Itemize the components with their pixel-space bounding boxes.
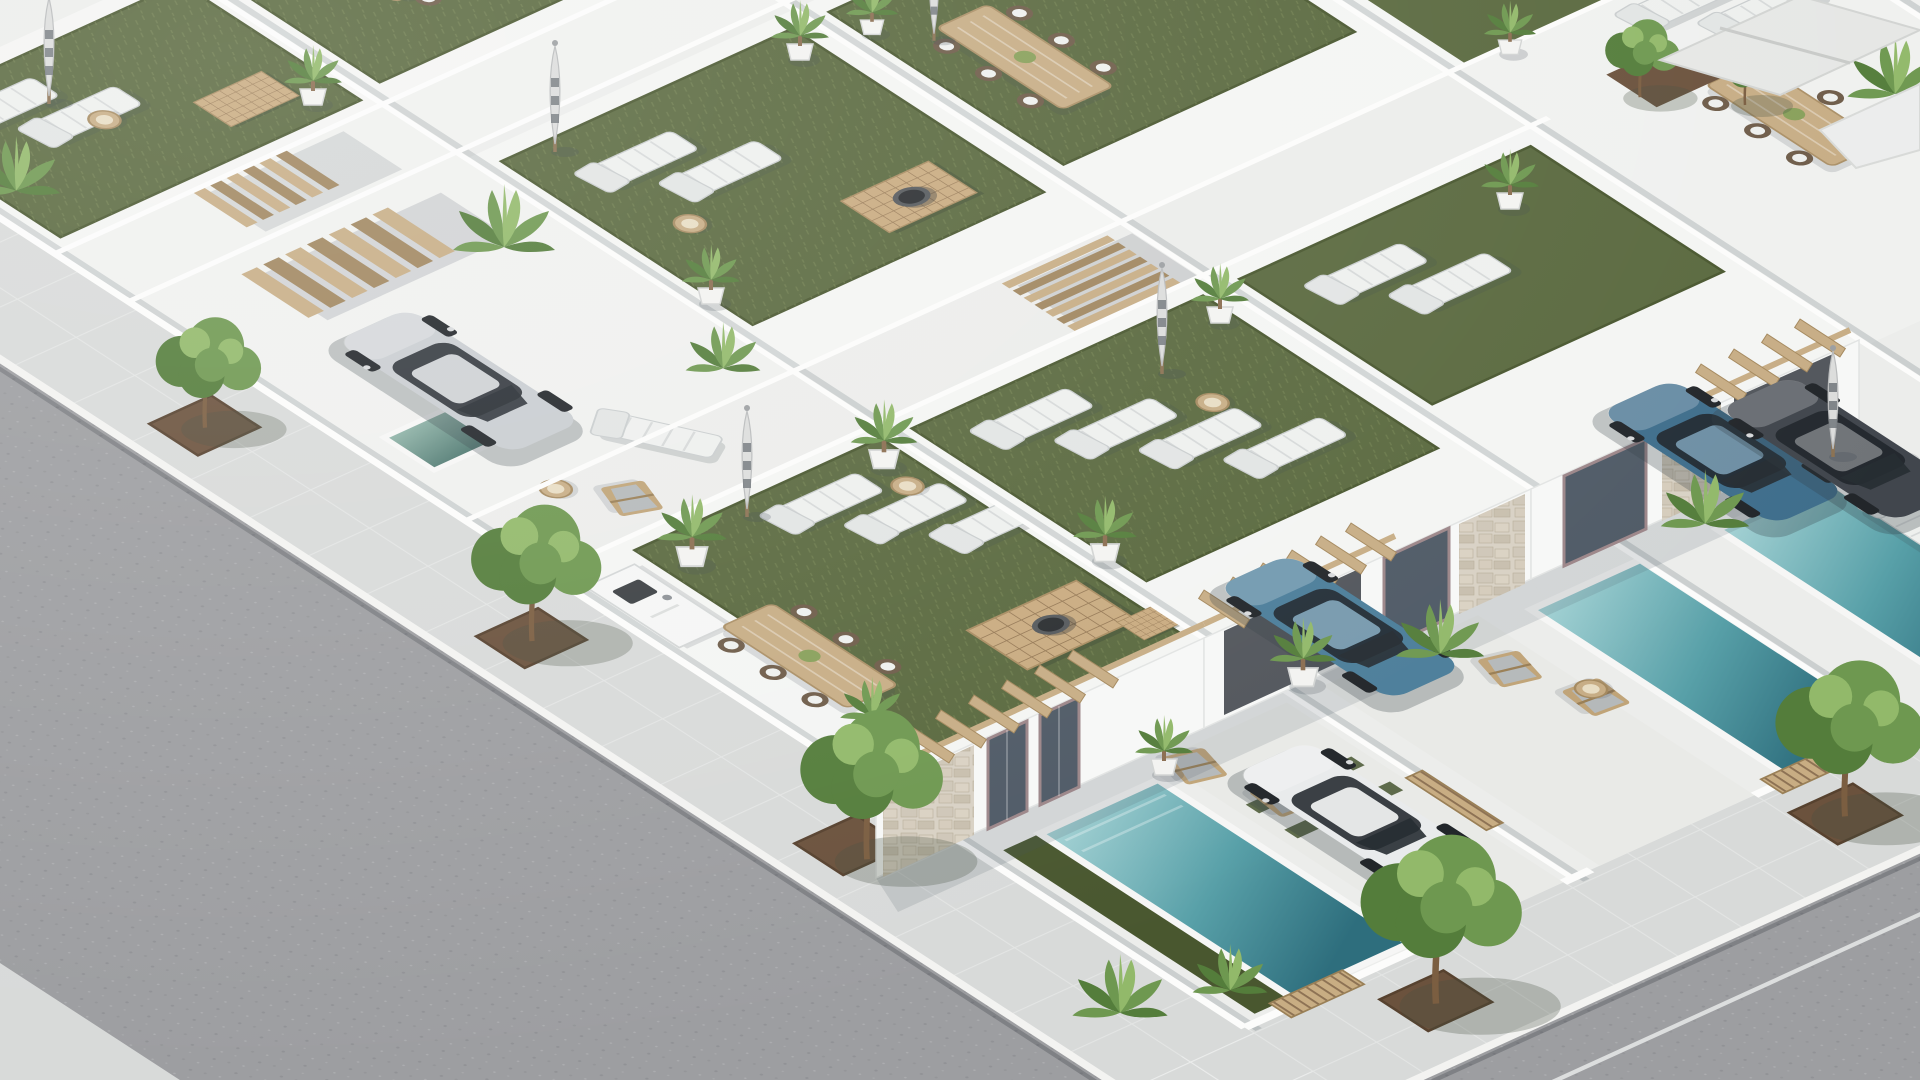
- rendered-scene: Photorealistic aerial render of a modern…: [0, 0, 1920, 1080]
- villa-development-render: Aerial 3D architectural render - white v…: [0, 0, 1920, 1080]
- sunlight-overlay: [0, 0, 1920, 1080]
